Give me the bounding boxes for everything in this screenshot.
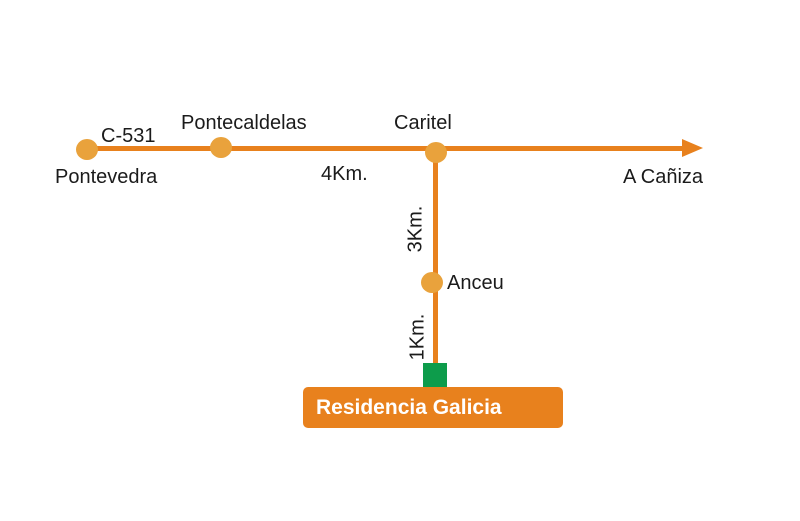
node-dot-pontecaldelas (210, 137, 232, 158)
route-map: C-531 Pontevedra Pontecaldelas Caritel A… (0, 0, 800, 521)
node-dot-pontevedra (76, 139, 98, 160)
residencia-banner-label: Residencia Galicia (316, 396, 502, 419)
arrow-right-icon (682, 139, 703, 157)
road-line-horizontal (87, 146, 683, 151)
distance-label-3km: 3Km. (405, 206, 425, 253)
stop-label-caritel: Caritel (394, 113, 452, 133)
road-line-vertical (433, 152, 438, 366)
stop-label-pontevedra: Pontevedra (55, 167, 157, 187)
distance-label-4km: 4Km. (321, 164, 368, 184)
distance-label-1km: 1Km. (407, 314, 427, 361)
direction-label-a-caniza: A Cañiza (623, 167, 703, 187)
node-dot-caritel (425, 142, 447, 163)
stop-label-anceu: Anceu (447, 273, 504, 293)
road-code-label: C-531 (101, 126, 155, 146)
residencia-banner: Residencia Galicia (303, 387, 563, 428)
residencia-marker-icon (423, 363, 447, 388)
stop-label-pontecaldelas: Pontecaldelas (181, 113, 307, 133)
node-dot-anceu (421, 272, 443, 293)
